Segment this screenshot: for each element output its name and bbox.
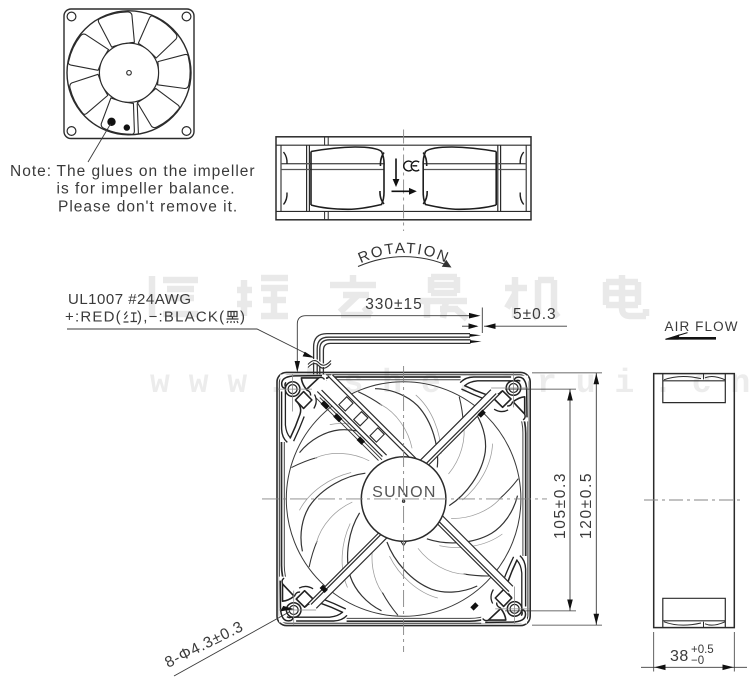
svg-text:Note:: Note:: [10, 163, 52, 180]
svg-text:330±15: 330±15: [365, 296, 423, 313]
svg-text:UL1007 #24AWG: UL1007 #24AWG: [68, 291, 192, 308]
svg-text:38: 38: [670, 648, 689, 665]
svg-text:−0: −0: [691, 655, 704, 667]
svg-text:8-Φ4.3±0.3: 8-Φ4.3±0.3: [162, 618, 246, 671]
svg-text:5±0.3: 5±0.3: [513, 306, 557, 323]
svg-text:AIR FLOW: AIR FLOW: [665, 319, 739, 334]
svg-text:): ): [240, 309, 246, 326]
svg-text:www.hshengrui.cn: www.hshengrui.cn: [150, 365, 750, 402]
svg-text:120±0.5: 120±0.5: [578, 472, 595, 539]
svg-text:ROTATION: ROTATION: [356, 240, 453, 267]
svg-text:Please don't remove it.: Please don't remove it.: [58, 199, 238, 216]
svg-text:),−:BLACK(: ),−:BLACK(: [137, 309, 225, 326]
svg-text:+:RED(: +:RED(: [65, 309, 122, 326]
svg-text:The glues on the impeller: The glues on the impeller: [57, 163, 256, 180]
svg-text:105±0.3: 105±0.3: [552, 472, 569, 539]
svg-text:is for impeller balance.: is for impeller balance.: [57, 181, 236, 198]
